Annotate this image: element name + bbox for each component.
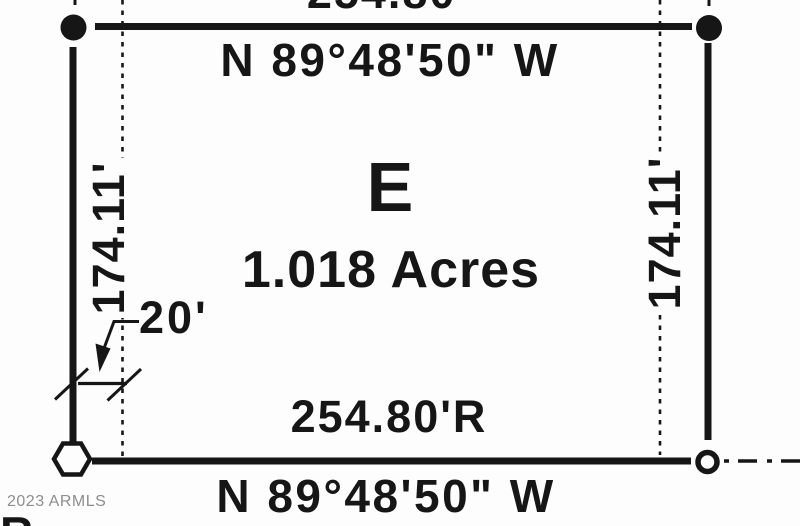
north-line-bearing-label: N 89°48'50" W — [190, 35, 590, 85]
south-line-bearing-label: N 89°48'50" W — [186, 471, 586, 521]
parcel-area-label: 1.018 Acres — [191, 244, 591, 296]
west-line-distance-label: 174.11' — [86, 158, 132, 318]
north-line-distance-label: 254.80' — [288, 0, 488, 17]
easement-offset-label: 20' — [139, 295, 209, 341]
monument-filled-circle-nw-icon — [61, 15, 87, 41]
offset-arrowhead-icon — [96, 344, 111, 373]
monument-open-circle-se-icon — [698, 453, 717, 472]
south-line-distance-label: 254.80'R — [289, 393, 489, 441]
parcel-letter-label: E — [290, 152, 490, 222]
plat-map: 254.80' N 89°48'50" W E 1.018 Acres 254.… — [0, 0, 800, 526]
monument-hexagon-sw-icon — [54, 444, 90, 475]
clipped-corner-letter: R — [0, 509, 33, 526]
monument-filled-circle-ne-icon — [696, 15, 722, 41]
east-line-distance-label: 174.11' — [642, 153, 688, 313]
offset-leader-line — [105, 322, 140, 348]
